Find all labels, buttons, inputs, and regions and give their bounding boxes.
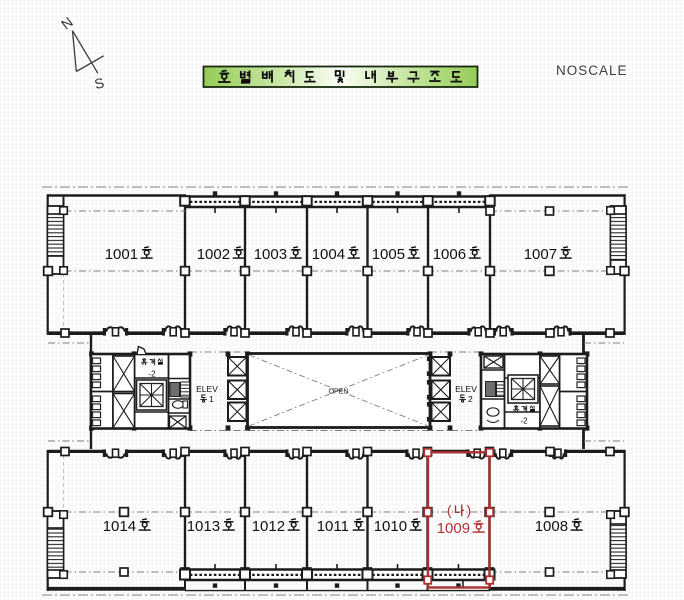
svg-text:1010: 1010 — [374, 518, 407, 535]
svg-text:1007: 1007 — [524, 246, 557, 263]
svg-text:1: 1 — [209, 394, 214, 404]
svg-text:1008: 1008 — [535, 518, 568, 535]
svg-text:1009: 1009 — [437, 520, 470, 537]
svg-text:1011: 1011 — [317, 518, 349, 535]
svg-text:1004: 1004 — [312, 246, 345, 263]
svg-text:(: ( — [447, 502, 452, 518]
svg-text:1005: 1005 — [372, 246, 405, 263]
svg-text:1013: 1013 — [187, 518, 220, 535]
svg-text:ELEV: ELEV — [196, 384, 218, 394]
svg-text:-2: -2 — [148, 370, 156, 379]
svg-text:1006: 1006 — [433, 246, 466, 263]
svg-text:ELEV: ELEV — [455, 384, 477, 394]
svg-text:1001: 1001 — [105, 246, 138, 263]
svg-text:OPEN: OPEN — [329, 389, 349, 396]
svg-text:NOSCALE: NOSCALE — [556, 63, 628, 78]
svg-text:1012: 1012 — [252, 518, 285, 535]
svg-text:2: 2 — [468, 394, 473, 404]
svg-text:): ) — [467, 502, 472, 518]
svg-text:1003: 1003 — [254, 246, 287, 263]
svg-text:1014: 1014 — [103, 518, 136, 535]
svg-text:-2: -2 — [520, 417, 528, 426]
svg-text:1002: 1002 — [197, 246, 230, 263]
